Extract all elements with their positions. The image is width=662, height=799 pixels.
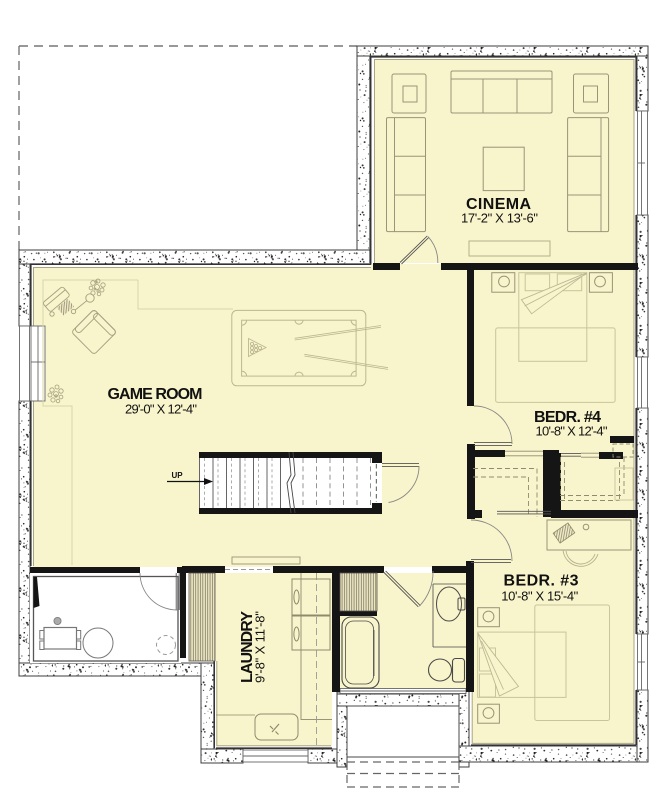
svg-text:10'-8" X 12'-4": 10'-8" X 12'-4" xyxy=(536,424,608,439)
svg-text:17'-2" X 13'-6": 17'-2" X 13'-6" xyxy=(461,211,538,226)
svg-text:10'-8" X 15'-4": 10'-8" X 15'-4" xyxy=(501,589,578,604)
svg-text:UP: UP xyxy=(171,471,183,480)
svg-text:9'-8" X 11'-8": 9'-8" X 11'-8" xyxy=(253,611,268,683)
svg-text:GAME ROOM: GAME ROOM xyxy=(108,386,203,403)
svg-text:BEDR. #3: BEDR. #3 xyxy=(504,573,579,590)
svg-text:29'-0" X 12'-4": 29'-0" X 12'-4" xyxy=(125,402,197,417)
